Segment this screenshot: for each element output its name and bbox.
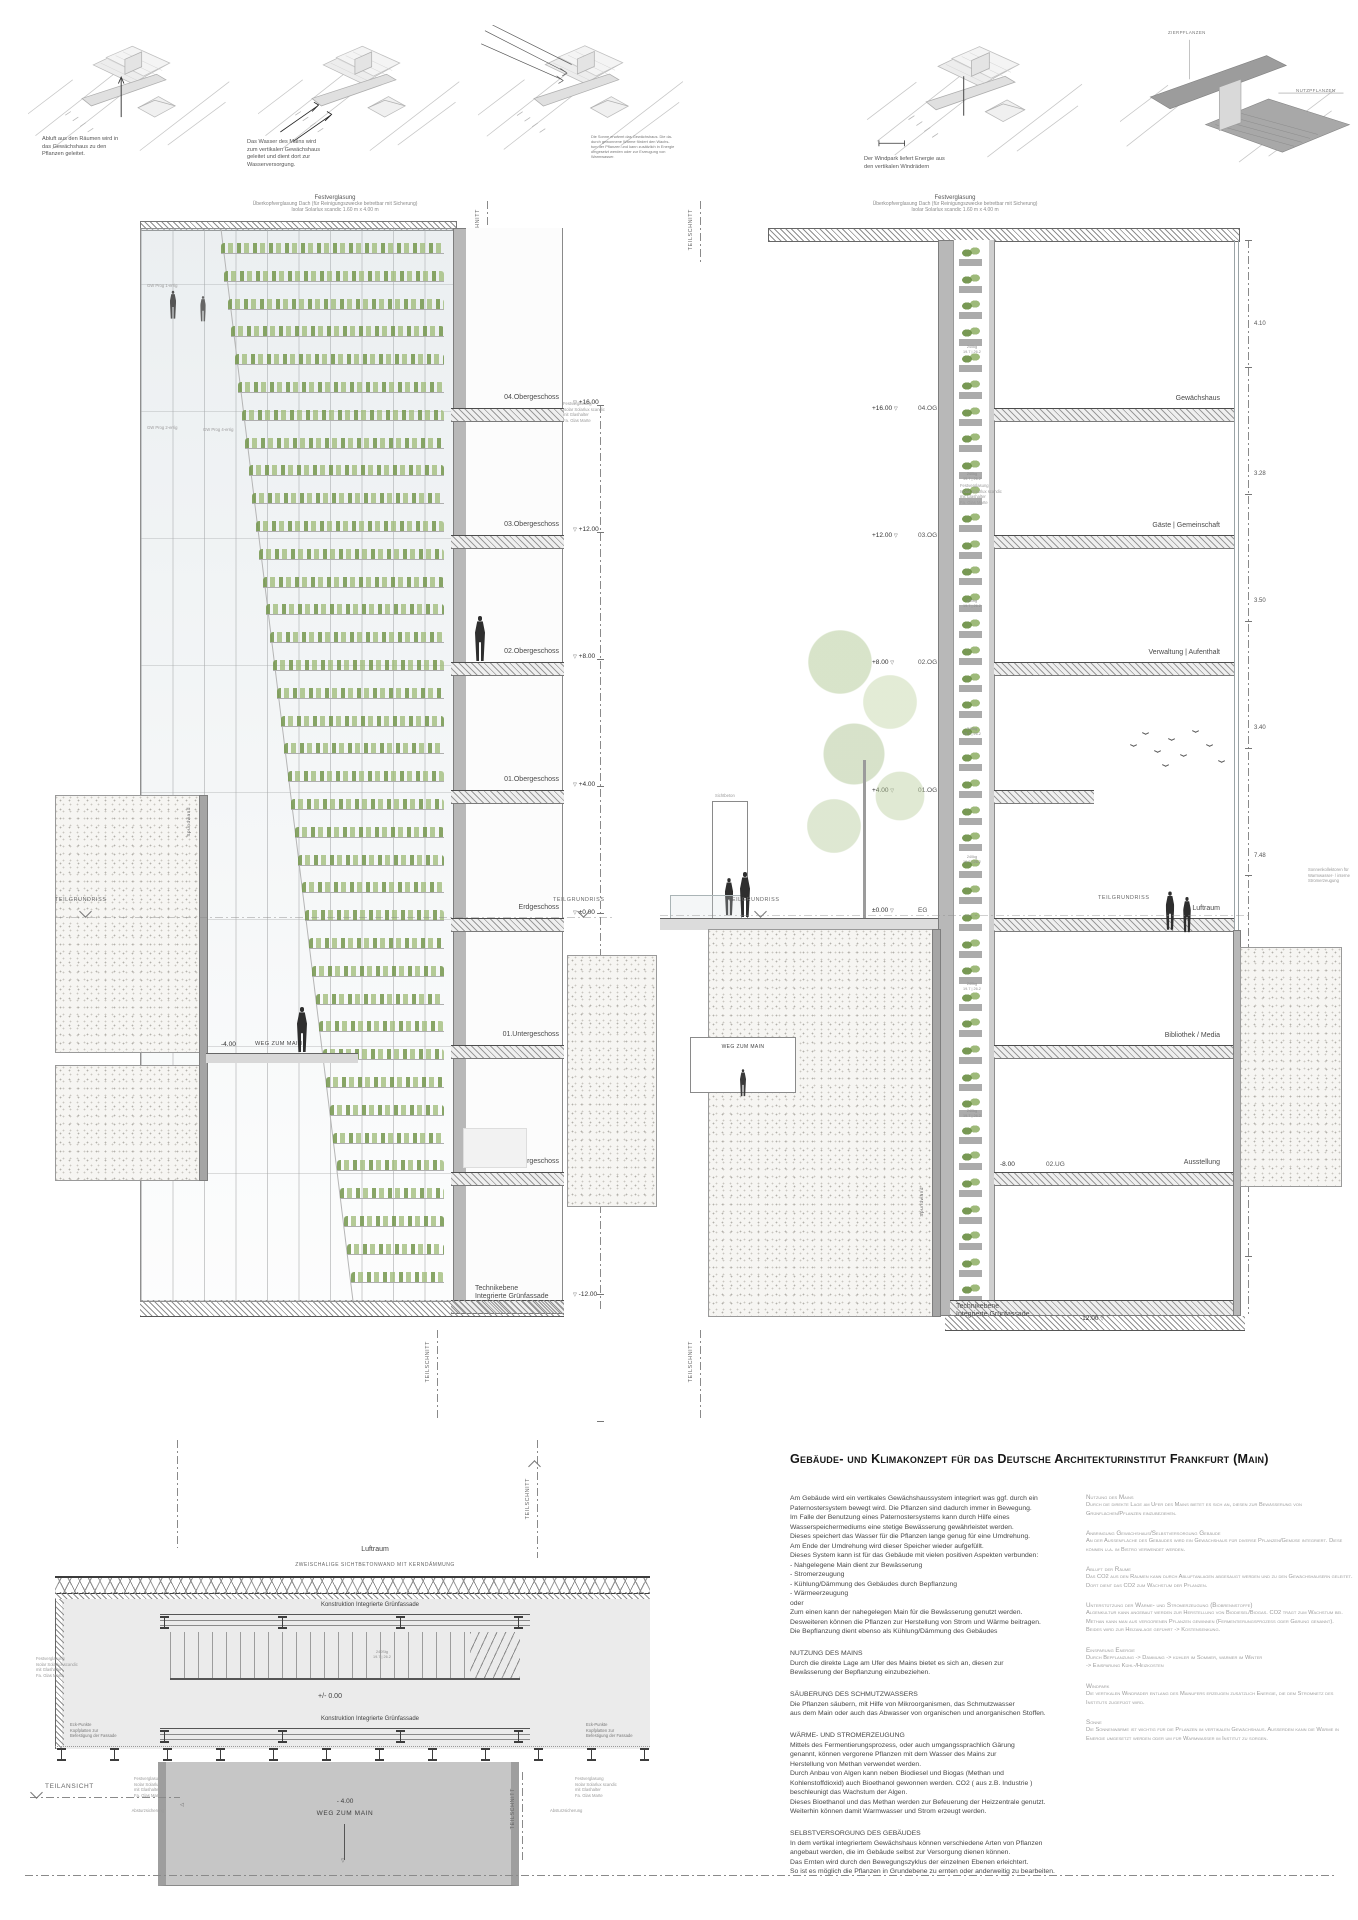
plant-shelf <box>347 1244 444 1255</box>
caption-windpark: Der Windpark liefert Energie aus den ver… <box>864 156 984 171</box>
plant-shelf <box>259 549 444 560</box>
plant-box <box>959 299 982 321</box>
person-tunnel <box>740 1069 746 1097</box>
i-beam <box>160 1730 169 1743</box>
bird-flock <box>1128 723 1228 771</box>
teilschnitt-label: TEILSCHNITT <box>425 1341 431 1382</box>
plant-shelf <box>245 438 444 449</box>
text-column-left: Am Gebäude wird ein vertikales Gewächsha… <box>790 1494 1066 1877</box>
rc-body-unterstuetzung: Algenkultur kann angebaut werden zur Her… <box>1086 1609 1354 1635</box>
arrow-head-icon: ▽ <box>341 1858 345 1864</box>
rc-body-anbringung: An der Aussenfläche des Gebäudes wird ei… <box>1086 1537 1354 1554</box>
equipment-box <box>463 1128 527 1168</box>
dim-tick <box>1245 748 1252 749</box>
level-marker-icon: ▽ <box>573 1292 577 1298</box>
plant-box <box>959 938 982 960</box>
teilgrundriss-left: TEILGRUNDRISS <box>728 897 780 903</box>
plant-shelf <box>242 410 444 421</box>
label-nutzpflanzen: NUTZPFLANZEN <box>1296 88 1335 93</box>
plant-shelf <box>281 716 444 727</box>
teilschnitt-label: TEILSCHNITT <box>525 1478 531 1519</box>
plant-shelf <box>256 521 444 532</box>
plant-shelf <box>337 1160 444 1171</box>
walkway-slab <box>206 1053 358 1063</box>
plant-box <box>959 805 982 827</box>
teilschnitt-label: TEILSCHNITT <box>510 1788 516 1829</box>
glass-note-2: GW Prog 2-errig <box>147 425 177 431</box>
plant-box <box>959 884 982 906</box>
cut-arrow-icon <box>528 1460 541 1473</box>
dim-tick <box>1245 494 1252 495</box>
dim-tick <box>1245 621 1252 622</box>
dim-tick <box>1245 240 1252 241</box>
rc-heading-anbringung: Anbringung Gewächshaus/Selbstversorgung … <box>1086 1530 1354 1537</box>
person-walkway <box>740 872 750 918</box>
dim-tick <box>1245 1256 1252 1257</box>
plant-shelf <box>270 632 444 643</box>
paragraph-saeuberung: Die Pflanzen säubern, mit Hilfe von Mikr… <box>790 1700 1066 1719</box>
plant-shelf <box>284 743 444 754</box>
floor-slab <box>994 535 1234 549</box>
tag: 04.OG <box>918 405 937 412</box>
absturz-left: Absturzsicherung <box>104 1808 164 1814</box>
rc-heading-abluft: Abluft der Räume <box>1086 1566 1354 1573</box>
soil-left-upper <box>55 795 207 1053</box>
caption-sonne: Die Sonne erwärmt das Gewächshaus. Die d… <box>591 134 691 159</box>
wand-note: ZWEISCHALIGE SICHTBETONWAND MIT KERNDÄMM… <box>230 1562 520 1568</box>
soil-right <box>567 955 657 1207</box>
foundation-slab <box>140 1300 564 1317</box>
rc-heading-einsparung: Einsparung Energie <box>1086 1647 1354 1654</box>
elev: +12.00 <box>872 532 892 539</box>
plant-shelf <box>312 966 444 977</box>
plant-shelf <box>316 994 444 1005</box>
paragraph-intro: Am Gebäude wird ein vertikales Gewächsha… <box>790 1494 1066 1637</box>
plant-box <box>959 778 982 800</box>
plant-shelf <box>319 1021 444 1032</box>
floor-label-01ug: 01.Untergeschoss <box>459 1031 559 1039</box>
person-figure <box>200 296 206 322</box>
roof-slab <box>768 228 1240 242</box>
i-beam <box>587 1748 596 1761</box>
ibeam-row <box>55 1746 650 1763</box>
plant-box <box>959 246 982 268</box>
plant-box <box>959 512 982 534</box>
courtyard-level: - 4.00 <box>300 1798 390 1805</box>
room-technikebene: Technikebene Integrierte Grünfassade <box>956 1303 1056 1319</box>
i-beam <box>322 1748 331 1761</box>
plant-box <box>959 1017 982 1039</box>
paragraph-nutzung: Durch die direkte Lage am Ufer des Mains… <box>790 1659 1066 1678</box>
paternoster-shaft <box>953 240 991 1314</box>
railing <box>170 1632 470 1680</box>
plant-shelf <box>333 1133 444 1144</box>
plant-box <box>959 672 982 694</box>
rc-body-windpark: Die vertikalen Windräder entlang des Mai… <box>1086 1690 1354 1707</box>
plant-shelf <box>340 1188 444 1199</box>
teilgrundriss-right: TEILGRUNDRISS <box>1098 895 1150 901</box>
plant-box <box>959 565 982 587</box>
section-cut-line <box>437 1330 438 1418</box>
spundwand-wall <box>199 795 208 1181</box>
section-cut-line <box>700 201 701 263</box>
plant-box <box>959 1204 982 1226</box>
i-beam <box>428 1748 437 1761</box>
shaft-wall-right <box>989 240 995 1314</box>
plant-box <box>959 1177 982 1199</box>
rc-heading-unterstuetzung: Unterstützung der Wärme- und Stromerzeug… <box>1086 1602 1354 1609</box>
sonnenkollektor-note: Sonnenkollektoren für Warmwasser- / inte… <box>1308 867 1358 884</box>
room-verwaltung: Verwaltung | Aufenthalt <box>1070 649 1220 657</box>
absturz-right: Absturzsicherung <box>550 1808 610 1814</box>
dim-tick <box>597 659 604 660</box>
plant-box <box>959 1150 982 1172</box>
floor-slab <box>451 535 564 549</box>
floor-label-01og: 01.Obergeschoss <box>459 776 559 784</box>
plant-box <box>959 698 982 720</box>
tag: 02.UG <box>1046 1161 1065 1168</box>
rc-body-abluft: Das CO2 aus den Räumen kann durch Abluft… <box>1086 1573 1354 1590</box>
axis-line <box>177 1440 178 1548</box>
person-atrium <box>1166 891 1175 930</box>
truss-band-upper <box>160 1614 530 1630</box>
floor-slab <box>994 662 1234 676</box>
section-cut-line <box>522 1772 523 1862</box>
bird-icon <box>1206 743 1213 747</box>
elev-8: +8.00 <box>579 653 595 660</box>
dim: 7.48 <box>1254 853 1266 859</box>
floor-slab <box>451 918 564 932</box>
elev: -12.00 <box>1080 1315 1098 1322</box>
rc-heading-mains: Nutzung des Mains <box>1086 1494 1354 1501</box>
weg-zum-main-box: WEG ZUM MAIN <box>690 1037 796 1093</box>
elev: +16.00 <box>872 405 892 412</box>
i-beam <box>375 1748 384 1761</box>
eckpunkte-right: Eck-Punkte Kopfplatten zur Befestigung d… <box>586 1722 648 1739</box>
plant-shelf <box>351 1272 444 1283</box>
plant-box <box>959 1071 982 1093</box>
i-beam <box>514 1616 523 1629</box>
plant-box <box>959 1230 982 1252</box>
heading-saeuberung: SÄUBERUNG DES SCHMUTZWASSERS <box>790 1691 1066 1698</box>
teilgrundriss-left: TEILGRUNDRISS <box>55 897 107 903</box>
bird-icon <box>1130 743 1137 747</box>
bird-icon <box>1218 759 1225 763</box>
plant-shelf <box>263 577 444 588</box>
planter-box-label: 240kg 19.7 | 26.2 <box>956 345 988 355</box>
direction-arrow <box>344 1824 345 1860</box>
floor-slab <box>994 408 1234 422</box>
detail-plan-drawing: TEILSCHNITT Luftraum ZWEISCHALIGE SICHTB… <box>30 1440 650 1895</box>
person-02og <box>475 616 485 662</box>
plan-cut-line <box>660 915 1250 916</box>
plant-box <box>959 751 982 773</box>
plant-shelf <box>273 660 444 671</box>
rc-body-mains: Durch die direkte Lage am Ufer des Mains… <box>1086 1501 1354 1518</box>
plant-box <box>959 432 982 454</box>
sichtbeton-label: Sichtbeton <box>715 793 735 799</box>
i-beam <box>163 1748 172 1761</box>
wall-hatch <box>55 1592 650 1599</box>
person-on-walkway <box>297 1007 307 1053</box>
bird-icon <box>1192 729 1199 733</box>
plant-shelf <box>224 271 444 282</box>
level-marker-icon: ▽ <box>573 527 577 533</box>
level-marker-icon: ▽ <box>573 654 577 660</box>
plant-box <box>959 273 982 295</box>
i-beam <box>514 1730 523 1743</box>
diagram-pflanzenzonen <box>1120 28 1358 166</box>
i-beam <box>110 1748 119 1761</box>
concept-text-block: Gebäude- und Klimakonzept für das Deutsc… <box>790 1442 1358 1912</box>
tag: 03.OG <box>918 532 937 539</box>
rc-body-einsparung: Durch Bepflanzung -> Dämmung -> kühler i… <box>1086 1654 1354 1671</box>
i-beam <box>396 1616 405 1629</box>
dim: 3.50 <box>1254 598 1266 604</box>
walkway-elev: -4.00 <box>221 1041 236 1048</box>
floor-label-02og: 02.Obergeschoss <box>459 648 559 656</box>
plant-shelf <box>277 688 444 699</box>
bird-icon <box>1142 731 1149 735</box>
plant-box <box>959 406 982 428</box>
floor-slab <box>451 408 564 422</box>
floor-slab <box>994 918 1234 932</box>
glass-facade <box>1234 240 1239 930</box>
floor-slab <box>994 1172 1234 1186</box>
diagram-windpark <box>860 25 1095 163</box>
floor-slab <box>451 1045 564 1059</box>
roof-note-3: Isolar Solarlux scandic 1.60 m x 4.00 m <box>785 207 1125 213</box>
heading-waerme: WÄRME- UND STROMERZEUGUNG <box>790 1732 1066 1739</box>
i-beam <box>396 1730 405 1743</box>
spundwand-label: Spundwand <box>186 807 191 837</box>
soil-left-lower <box>55 1065 207 1181</box>
plant-box <box>959 379 982 401</box>
i-beam <box>269 1748 278 1761</box>
glazing-note: Festverglasung Isolar Solarlux scandic m… <box>960 483 1006 506</box>
plant-shelf <box>288 771 444 782</box>
view-cut-line <box>30 1797 180 1798</box>
floor-slab <box>451 662 564 676</box>
i-beam <box>160 1616 169 1629</box>
stair-run <box>470 1632 520 1680</box>
stair-dimension: 240Stg 19.7 | 26.2 <box>360 1650 404 1660</box>
caption-wasser: Das Wasser des Mains wird zum vertikalen… <box>247 139 367 169</box>
plant-shelf <box>235 354 444 365</box>
dim: 3.28 <box>1254 471 1266 477</box>
plant-box <box>959 1124 982 1146</box>
eckpunkte-left: Eck-Punkte Kopfplatten zur Befestigung d… <box>70 1722 140 1739</box>
level-marker-icon: ▽ <box>573 782 577 788</box>
planter-box-label: 240kg 19.7 | 26.2 <box>956 982 988 992</box>
i-beam <box>534 1748 543 1761</box>
sunken-courtyard <box>158 1762 519 1886</box>
plant-shelf <box>302 882 444 893</box>
dim-tick <box>597 1421 604 1422</box>
floor-slab-partial <box>994 790 1094 804</box>
left-section-drawing: Festverglasung Überkopfverglasung Dach (… <box>55 195 655 1440</box>
teilgrundriss-right: TEILGRUNDRISS <box>553 897 605 903</box>
planter-box-label: 240kg 19.7 | 26.2 <box>956 472 988 482</box>
plant-box <box>959 1257 982 1279</box>
caption-abluft: Abluft aus den Räumen wird in das Gewäch… <box>42 136 172 159</box>
marker-icon: ◁ <box>180 1802 184 1808</box>
plant-shelf <box>344 1216 444 1227</box>
dim: 4.10 <box>1254 321 1266 327</box>
plant-shelf <box>291 799 444 810</box>
dim-tick <box>597 913 604 914</box>
glass-note-3: GW Prog 4-errig <box>203 427 233 433</box>
bird-icon <box>1168 737 1175 741</box>
room-gewaechshaus: Gewächshaus <box>1070 395 1220 403</box>
luftraum-title: Luftraum <box>300 1546 450 1553</box>
i-beam <box>278 1730 287 1743</box>
section-cut-line <box>700 1330 701 1418</box>
plant-shelf <box>231 326 444 337</box>
floor-slab <box>451 790 564 804</box>
board-title: Gebäude- und Klimakonzept für das Deutsc… <box>790 1452 1269 1466</box>
room-bibliothek: Bibliothek / Media <box>1070 1032 1220 1040</box>
elev-4: +4.00 <box>579 781 595 788</box>
heading-nutzung: NUTZUNG DES MAINS <box>790 1650 1066 1657</box>
rc-body-sonne: Die Sonnenwärme ist wichtig für die Pfla… <box>1086 1726 1354 1743</box>
right-section-drawing: Festverglasung Überkopfverglasung Dach (… <box>660 195 1358 1440</box>
diagram-wasser <box>258 25 463 157</box>
plant-shelf <box>305 910 444 921</box>
dim-tick <box>597 532 604 533</box>
plan-cut-line <box>55 917 615 918</box>
plant-shelf <box>266 604 444 615</box>
rc-heading-windpark: Windpark <box>1086 1683 1354 1690</box>
plant-shelf <box>326 1077 444 1088</box>
teilansicht-label: TEILANSICHT <box>45 1783 94 1790</box>
section-cut-line <box>537 1440 538 1558</box>
elev-12: +12.00 <box>579 526 599 533</box>
dim: 3.40 <box>1254 725 1266 731</box>
plant-box <box>959 991 982 1013</box>
dim-tick <box>597 1294 604 1295</box>
plant-shelf <box>228 299 444 310</box>
plant-box <box>959 1044 982 1066</box>
walkway-label: WEG ZUM MAIN <box>255 1041 302 1047</box>
room-luftraum: Luftraum <box>1070 905 1220 913</box>
soil-right <box>1240 947 1342 1187</box>
plant-box <box>959 831 982 853</box>
dim-tick <box>1245 875 1252 876</box>
i-beam <box>481 1748 490 1761</box>
plant-box <box>959 645 982 667</box>
weg-label: WEG ZUM MAIN <box>691 1044 795 1050</box>
plant-box <box>959 618 982 640</box>
paragraph-waerme: Mittels des Fermentierungsprozess, oder … <box>790 1741 1066 1817</box>
i-beam <box>216 1748 225 1761</box>
spundwand-label: Spundwand <box>919 1187 924 1217</box>
glass-note-1: GW Prog 1-errig <box>147 283 177 289</box>
floor-label-technik: Technikebene Integrierte Grünfassade <box>475 1285 575 1301</box>
room-ausstellung: Ausstellung <box>1070 1159 1220 1167</box>
i-beam <box>640 1748 649 1761</box>
roof-note-3: Isolar Solarlux scandic 1.60 m x 4.00 m <box>170 207 500 213</box>
floor-slab <box>451 1172 564 1186</box>
konstruktion-label-bottom: Konstruktion Integrierte Grünfassade <box>280 1716 460 1722</box>
label-zierpflanzen: ZIERPFLANZEN <box>1168 30 1206 35</box>
glazing-note: Festverglasung Isolar Solarlux scandic m… <box>563 401 609 424</box>
truss-band-lower <box>160 1728 530 1744</box>
rc-heading-sonne: Sonne <box>1086 1719 1354 1726</box>
floor-slab <box>994 1045 1234 1059</box>
person-figure <box>170 291 176 320</box>
plant-shelf <box>252 493 444 504</box>
teilschnitt-label: TEILSCHNITT <box>688 209 694 250</box>
floor-label-03og: 03.Obergeschoss <box>459 521 559 529</box>
floor-label-eg: Erdgeschoss <box>459 904 559 912</box>
paragraph-selbstversorgung: In dem vertikal integriertem Gewächshaus… <box>790 1839 1066 1877</box>
glazing-note: Festverglasung Isolar Solarlux scandic m… <box>575 1776 645 1799</box>
level-zero: +/- 0.00 <box>290 1693 370 1700</box>
presentation-board: ZIERPFLANZEN NUTZPFLANZEN Abluft aus den… <box>0 0 1358 1920</box>
planter-box-label: 240kg 19.7 | 26.2 <box>956 599 988 609</box>
room-gaeste: Gäste | Gemeinschaft <box>1070 522 1220 530</box>
spundwand-wall <box>932 929 941 1317</box>
konstruktion-label-top: Konstruktion Integrierte Grünfassade <box>280 1602 460 1608</box>
plant-box <box>959 539 982 561</box>
plant-shelf <box>330 1105 444 1116</box>
plant-shelf <box>249 465 444 476</box>
soil-left <box>708 929 936 1317</box>
plant-shelf <box>221 243 444 254</box>
plant-shelf <box>309 938 444 949</box>
elev: -8.00 <box>1000 1161 1015 1168</box>
glazing-note: Festverglasung Isolar Solarlux scandic m… <box>36 1656 96 1679</box>
dim-tick <box>597 786 604 787</box>
teilschnitt-label: TEILSCHNITT <box>688 1341 694 1382</box>
tree-trunk <box>863 760 866 918</box>
i-beam <box>278 1616 287 1629</box>
i-beam <box>57 1748 66 1761</box>
plant-box <box>959 352 982 374</box>
elev-m12: -12.00 <box>579 1291 597 1298</box>
planter-box-label: 240kg 19.7 | 26.2 <box>956 1109 988 1119</box>
plant-shelf <box>298 855 444 866</box>
dim-tick <box>1245 367 1252 368</box>
floor-label-04og: 04.Obergeschoss <box>459 394 559 402</box>
bird-icon <box>1154 749 1161 753</box>
bird-icon <box>1162 763 1169 767</box>
courtyard-label: WEG ZUM MAIN <box>280 1810 410 1817</box>
bird-icon <box>1180 753 1187 757</box>
plant-shelf <box>238 382 444 393</box>
plant-shelf <box>295 827 444 838</box>
text-column-right: Nutzung des Mains Durch die direkte Lage… <box>1086 1494 1354 1743</box>
planter-box-label: 240kg 19.7 | 26.2 <box>956 727 988 737</box>
heading-selbstversorgung: SELBSTVERSORGUNG DES GEBÄUDES <box>790 1830 1066 1837</box>
planter-box-label: 240kg 19.7 | 26.2 <box>956 855 988 865</box>
